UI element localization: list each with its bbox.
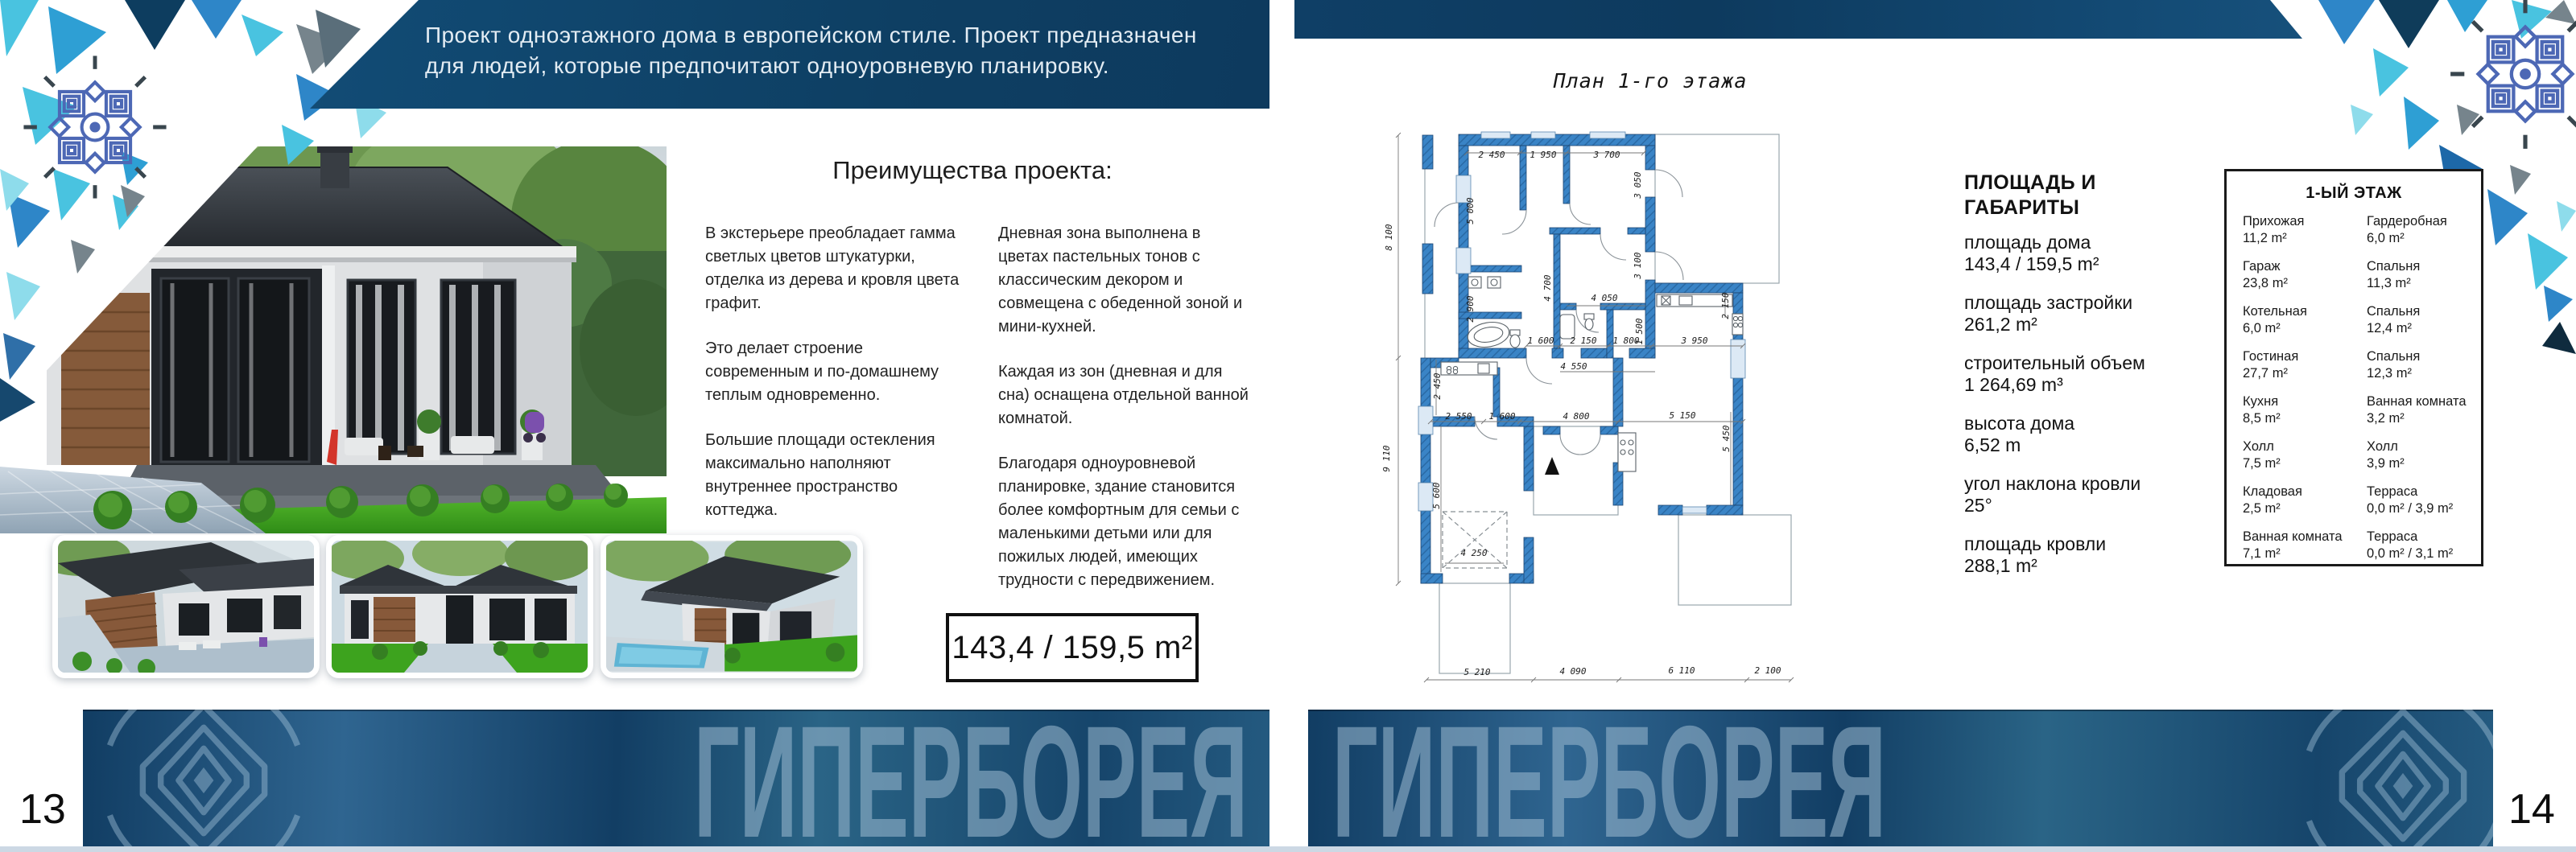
advantages-column-2: Дневная зона выполнена в цветах пастельн… <box>998 222 1254 614</box>
spec-item: угол наклона кровли 25° <box>1964 473 2206 517</box>
room-name: Гараж <box>2243 258 2362 275</box>
spec-value: 261,2 m² <box>1964 314 2206 335</box>
spec-item: высота дома 6,52 m <box>1964 413 2206 456</box>
spec-item: строительный объем 1 264,69 m³ <box>1964 352 2206 396</box>
header-line-1: Проект одноэтажного дома в европейском с… <box>425 23 1197 48</box>
room-area: 6,0 m² <box>2243 320 2362 337</box>
catalog-spread: Проект одноэтажного дома в европейском с… <box>0 0 2576 852</box>
advantage-paragraph: В экстерьере преобладает гамма светлых ц… <box>705 222 961 315</box>
svg-text:3 950: 3 950 <box>1680 335 1707 346</box>
room-name: Холл <box>2367 438 2484 455</box>
advantage-paragraph: Каждая из зон (дневная и для сна) оснаще… <box>998 360 1254 430</box>
spec-item: площадь застройки 261,2 m² <box>1964 292 2206 335</box>
room-cell: Терраса0,0 m² / 3,9 m² <box>2367 484 2484 517</box>
svg-text:2 900: 2 900 <box>1465 295 1476 322</box>
room-area: 3,9 m² <box>2367 455 2484 472</box>
svg-text:2 450: 2 450 <box>1432 372 1443 399</box>
svg-text:4 050: 4 050 <box>1591 293 1617 303</box>
advantage-paragraph: Большие площади остекления максимально н… <box>705 429 961 522</box>
specs-heading-line-1: ПЛОЩАДЬ И <box>1964 171 2206 196</box>
room-cell: Спальня12,4 m² <box>2367 303 2484 337</box>
room-name: Кладовая <box>2243 484 2362 500</box>
svg-text:4 700: 4 700 <box>1542 274 1553 301</box>
specs-heading: ПЛОЩАДЬ И ГАБАРИТЫ <box>1964 171 2206 220</box>
thumbnail-aerial-view <box>52 535 320 678</box>
rooms-grid: Прихожая11,2 m² Гардеробная6,0 m² Гараж2… <box>2243 213 2484 562</box>
spec-item: площадь кровли 288,1 m² <box>1964 533 2206 577</box>
thumbnail-illustration <box>332 541 588 673</box>
room-area: 7,5 m² <box>2243 455 2362 472</box>
specs-list: площадь дома 143,4 / 159,5 m² площадь за… <box>1964 232 2206 577</box>
room-name: Прихожая <box>2243 213 2362 230</box>
room-area: 11,2 m² <box>2243 230 2362 247</box>
room-name: Котельная <box>2243 303 2362 320</box>
svg-text:5 210: 5 210 <box>1463 667 1490 677</box>
svg-text:4 250: 4 250 <box>1460 548 1487 558</box>
room-name: Терраса <box>2367 484 2484 500</box>
room-cell: Спальня12,3 m² <box>2367 348 2484 382</box>
bottom-strip <box>0 846 2576 852</box>
room-area: 0,0 m² / 3,9 m² <box>2367 500 2484 517</box>
svg-text:3 700: 3 700 <box>1592 150 1620 160</box>
specs-heading-line-2: ГАБАРИТЫ <box>1964 196 2206 220</box>
room-area: 8,5 m² <box>2243 410 2362 427</box>
room-cell: Котельная6,0 m² <box>2243 303 2362 337</box>
room-cell: Кладовая2,5 m² <box>2243 484 2362 517</box>
room-name: Гостиная <box>2243 348 2362 365</box>
header-line-2: для людей, которые предпочитают одноуров… <box>425 53 1109 79</box>
room-cell: Терраса0,0 m² / 3,1 m² <box>2367 529 2484 562</box>
room-area: 0,0 m² / 3,1 m² <box>2367 545 2484 562</box>
footer-banner-right: ГИПЕРБОРЕЯ <box>1308 710 2493 846</box>
spec-value: 25° <box>1964 495 2206 517</box>
thumbnail-illustration <box>58 541 314 673</box>
svg-text:1 600: 1 600 <box>1488 411 1515 422</box>
svg-text:2 100: 2 100 <box>1754 665 1781 676</box>
svg-text:2 550: 2 550 <box>1445 411 1472 422</box>
room-name: Холл <box>2243 438 2362 455</box>
room-cell: Холл7,5 m² <box>2243 438 2362 472</box>
lounge-chair <box>451 436 494 454</box>
glass-door <box>238 278 309 462</box>
room-area: 2,5 m² <box>2243 500 2362 517</box>
spec-label: площадь кровли <box>1964 533 2206 555</box>
spec-label: площадь дома <box>1964 232 2206 253</box>
thumbnail-pool-view <box>601 535 863 678</box>
room-name: Спальня <box>2367 258 2484 275</box>
thumbnail-illustration <box>606 541 857 673</box>
room-area: 12,3 m² <box>2367 365 2484 382</box>
spec-value: 6,52 m <box>1964 434 2206 456</box>
room-area: 23,8 m² <box>2243 275 2362 292</box>
room-name: Спальня <box>2367 348 2484 365</box>
room-cell: Спальня11,3 m² <box>2367 258 2484 292</box>
rooms-table: 1-ЫЙ ЭТАЖ Прихожая11,2 m² Гардеробная6,0… <box>2224 169 2483 566</box>
advantage-paragraph: Дневная зона выполнена в цветах пастельн… <box>998 222 1254 339</box>
rooms-table-title: 1-ЫЙ ЭТАЖ <box>2227 184 2481 203</box>
room-area: 11,3 m² <box>2367 275 2484 292</box>
brand-wordmark: ГИПЕРБОРЕЯ <box>1332 710 1886 846</box>
svg-text:2 150: 2 150 <box>1570 335 1596 346</box>
page-number-left: 13 <box>19 785 66 833</box>
room-cell: Гардеробная6,0 m² <box>2367 213 2484 247</box>
room-cell: Прихожая11,2 m² <box>2243 213 2362 247</box>
lounge-chair <box>345 438 383 455</box>
footer-banner-left: ГИПЕРБОРЕЯ <box>83 710 1269 846</box>
area-badge: 143,4 / 159,5 m² <box>946 613 1199 682</box>
footer-ornament <box>109 710 297 846</box>
room-name: Гардеробная <box>2367 213 2484 230</box>
svg-text:1 800: 1 800 <box>1612 335 1639 346</box>
room-area: 7,1 m² <box>2243 545 2362 562</box>
page-number-right: 14 <box>2508 785 2555 833</box>
svg-text:5 000: 5 000 <box>1465 197 1476 224</box>
svg-text:8 100: 8 100 <box>1384 224 1394 250</box>
advantages-column-1: В экстерьере преобладает гамма светлых ц… <box>705 222 961 544</box>
room-name: Ванная комната <box>2243 529 2362 545</box>
spec-value: 288,1 m² <box>1964 555 2206 577</box>
thumbnail-front-view <box>326 535 593 678</box>
room-area: 6,0 m² <box>2367 230 2484 247</box>
room-cell: Ванная комната7,1 m² <box>2243 529 2362 562</box>
specs-section: ПЛОЩАДЬ И ГАБАРИТЫ площадь дома 143,4 / … <box>1964 171 2206 594</box>
dashed-opening <box>1443 512 1507 568</box>
svg-text:9 110: 9 110 <box>1381 445 1392 471</box>
advantages-title: Преимущества проекта: <box>699 156 1246 185</box>
stroller <box>525 412 544 433</box>
footer-banner-art: ГИПЕРБОРЕЯ <box>1308 710 2493 846</box>
spec-label: площадь застройки <box>1964 292 2206 314</box>
advantage-paragraph: Это делает строение современным и по-дом… <box>705 337 961 407</box>
spec-label: строительный объем <box>1964 352 2206 374</box>
brand-wordmark: ГИПЕРБОРЕЯ <box>694 710 1248 846</box>
svg-text:1 950: 1 950 <box>1529 150 1556 160</box>
svg-text:2 150: 2 150 <box>1720 292 1731 319</box>
room-cell: Гостиная27,7 m² <box>2243 348 2362 382</box>
top-bar <box>1294 0 2326 39</box>
svg-text:5 450: 5 450 <box>1721 425 1732 451</box>
room-area: 3,2 m² <box>2367 410 2484 427</box>
svg-text:1 600: 1 600 <box>1527 335 1554 346</box>
room-name: Спальня <box>2367 303 2484 320</box>
room-cell: Холл3,9 m² <box>2367 438 2484 472</box>
spec-label: угол наклона кровли <box>1964 473 2206 495</box>
floor-plan-title: План 1-го этажа <box>1546 69 1755 93</box>
floor-plan: 2 450 1 950 3 700 5 000 3 050 4 700 3 10… <box>1336 97 1819 696</box>
svg-text:3 100: 3 100 <box>1633 252 1643 279</box>
footer-banner-art: ГИПЕРБОРЕЯ <box>83 710 1269 846</box>
room-cell: Гараж23,8 m² <box>2243 258 2362 292</box>
footer-ornament <box>2309 710 2493 846</box>
spec-item: площадь дома 143,4 / 159,5 m² <box>1964 232 2206 275</box>
room-name: Кухня <box>2243 393 2362 410</box>
svg-text:3 050: 3 050 <box>1633 171 1643 199</box>
spec-value: 143,4 / 159,5 m² <box>1964 253 2206 275</box>
svg-text:2 450: 2 450 <box>1478 150 1505 160</box>
room-area: 12,4 m² <box>2367 320 2484 337</box>
room-cell: Кухня8,5 m² <box>2243 393 2362 427</box>
entrance-arrow <box>1545 457 1559 475</box>
room-name: Ванная комната <box>2367 393 2484 410</box>
spec-value: 1 264,69 m³ <box>1964 374 2206 396</box>
svg-text:6 110: 6 110 <box>1668 665 1695 676</box>
advantage-paragraph: Благодаря одноуровневой планировке, здан… <box>998 452 1254 592</box>
svg-text:4 550: 4 550 <box>1560 361 1587 372</box>
room-name: Терраса <box>2367 529 2484 545</box>
svg-text:4 090: 4 090 <box>1559 666 1586 677</box>
svg-text:4 800: 4 800 <box>1563 411 1589 422</box>
svg-text:5 600: 5 600 <box>1431 482 1442 508</box>
room-cell: Ванная комната3,2 m² <box>2367 393 2484 427</box>
svg-text:5 150: 5 150 <box>1669 410 1695 421</box>
spec-label: высота дома <box>1964 413 2206 434</box>
room-area: 27,7 m² <box>2243 365 2362 382</box>
